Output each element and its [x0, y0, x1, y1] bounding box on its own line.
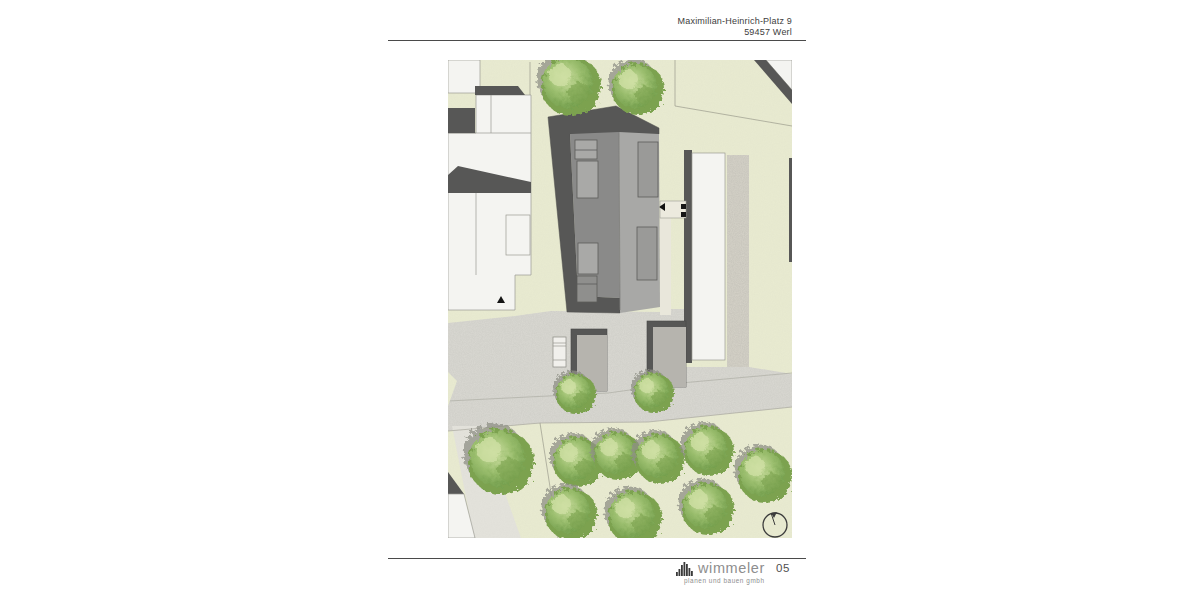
- company-logo: wimmeler planen und bauen gmbh: [676, 560, 786, 588]
- logo-bars-icon: [676, 561, 694, 576]
- door-mark: [681, 204, 686, 209]
- site-plan-canvas: [448, 60, 792, 538]
- roof-band: [475, 86, 525, 95]
- drawing-sheet: Maximilian-Heinrich-Platz 9 59457 Werl: [0, 0, 1200, 600]
- gravel-strip: [727, 155, 749, 367]
- project-address: Maximilian-Heinrich-Platz 9 59457 Werl: [678, 16, 792, 37]
- bin-store: [553, 337, 566, 367]
- header-rule: [388, 40, 806, 41]
- neighbour-building-east-edge: [789, 158, 792, 262]
- page-number: 05: [776, 562, 790, 574]
- address-line-2: 59457 Werl: [678, 27, 792, 38]
- slab-building-east: [684, 150, 725, 363]
- roof-block: [448, 108, 475, 133]
- brand-name: wimmeler: [698, 560, 765, 576]
- site-plan: [448, 60, 792, 538]
- brand-tagline: planen und bauen gmbh: [684, 577, 786, 584]
- door-mark: [681, 212, 686, 217]
- main-building: [548, 106, 660, 313]
- address-line-1: Maximilian-Heinrich-Platz 9: [678, 16, 792, 27]
